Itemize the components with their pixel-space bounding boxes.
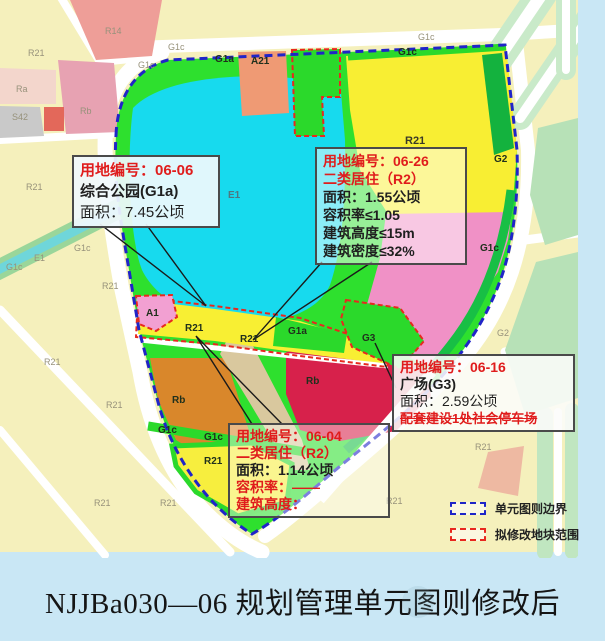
parcel-far: 容积率≤1.05 [323, 206, 459, 224]
parcel-label: S42 [12, 112, 28, 122]
legend-label: 拟修改地块范围 [495, 526, 579, 543]
parcel-label: Rb [172, 395, 185, 406]
parcel-area: 面积：1.14公顷 [236, 462, 382, 479]
callout-06-06: 用地编号：06-06 综合公园(G1a) 面积：7.45公顷 [72, 155, 220, 228]
parcel-label: R21 [405, 135, 425, 147]
blue-dashed-swatch [450, 502, 486, 515]
parcel-label: G1c [138, 60, 155, 70]
parcel-area: 面积：1.55公顷 [323, 188, 459, 206]
parcel-label: R21 [28, 48, 45, 58]
legend-item-modified-parcel: 拟修改地块范围 [450, 526, 579, 543]
parcel-label: R21 [44, 357, 61, 367]
parcel-label: G1c [398, 47, 417, 58]
parcel-label: R21 [185, 323, 203, 334]
parcel-label: G1a [288, 326, 307, 337]
parcel-label: R21 [26, 182, 43, 192]
parcel-area: 面积：2.59公顷 [400, 393, 567, 410]
parcel-use: 综合公园(G1a) [80, 181, 212, 202]
parcel-label: G2 [497, 328, 509, 338]
parcel-label: R21 [240, 334, 258, 345]
parcel-label: R21 [102, 281, 119, 291]
parcel-code: 用地编号：06-04 [236, 428, 382, 445]
parcel-label: A1 [146, 308, 159, 319]
parcel-label: G1c [6, 262, 23, 272]
parcel-label: G1c [418, 32, 435, 42]
callout-06-16: 用地编号：06-16 广场(G3) 面积：2.59公顷 配套建设1处社会停车场 [392, 354, 575, 432]
parcel-code: 用地编号：06-16 [400, 359, 567, 376]
parcel-label: R21 [160, 498, 177, 508]
parcel-use: 二类居住（R2） [323, 170, 459, 188]
parcel-height: 建筑高度： [236, 496, 382, 513]
parcel-label: Ra [16, 84, 28, 94]
screenshot-stage: R21R14RaS42RbG1cG1cR21G1cE1G1cR21R21R21R… [0, 0, 605, 641]
parcel-density: 建筑密度≤32% [323, 242, 459, 260]
parcel-label: G1c [158, 425, 177, 436]
parcel-label: G1c [480, 243, 499, 254]
parcel-label: A21 [251, 56, 269, 67]
parcel-label: G2 [494, 154, 507, 165]
parcel-label: Rb [80, 106, 92, 116]
parcel-code: 用地编号：06-26 [323, 152, 459, 170]
page-title: NJJBa030—06 规划管理单元图则修改后 [0, 580, 605, 622]
callout-06-04: 用地编号：06-04 二类居住（R2） 面积：1.14公顷 容积率：—— 建筑高… [228, 423, 390, 518]
parcel-use: 广场(G3) [400, 376, 567, 393]
parcel-area: 面积：7.45公顷 [80, 202, 212, 223]
parcel-parking-note: 配套建设1处社会停车场 [400, 410, 567, 427]
legend-label: 单元图则边界 [495, 500, 567, 517]
parcel-label: E1 [34, 253, 45, 263]
parcel-label: G1a [215, 54, 234, 65]
parcel-far: 容积率：—— [236, 479, 382, 496]
parcel-label: R21 [94, 498, 111, 508]
parcel-label: R21 [106, 400, 123, 410]
parcel-label: R14 [105, 26, 122, 36]
callout-06-26: 用地编号：06-26 二类居住（R2） 面积：1.55公顷 容积率≤1.05 建… [315, 147, 467, 265]
parcel-label: R21 [475, 442, 492, 452]
parcel-label: G1c [74, 243, 91, 253]
legend-item-unit-boundary: 单元图则边界 [450, 500, 579, 517]
parcel-use: 二类居住（R2） [236, 445, 382, 462]
parcel-label: Rb [306, 376, 319, 387]
parcel-height: 建筑高度≤15m [323, 224, 459, 242]
parcel-label: G1c [168, 42, 185, 52]
parcel-code: 用地编号：06-06 [80, 160, 212, 181]
parcel-label: G3 [362, 333, 375, 344]
parcel-label: R21 [204, 456, 222, 467]
red-dashed-swatch [450, 528, 486, 541]
parcel-label: E1 [228, 190, 240, 201]
legend: 单元图则边界 拟修改地块范围 [450, 500, 579, 552]
watermark [402, 586, 434, 618]
parcel-label: G1c [204, 432, 223, 443]
